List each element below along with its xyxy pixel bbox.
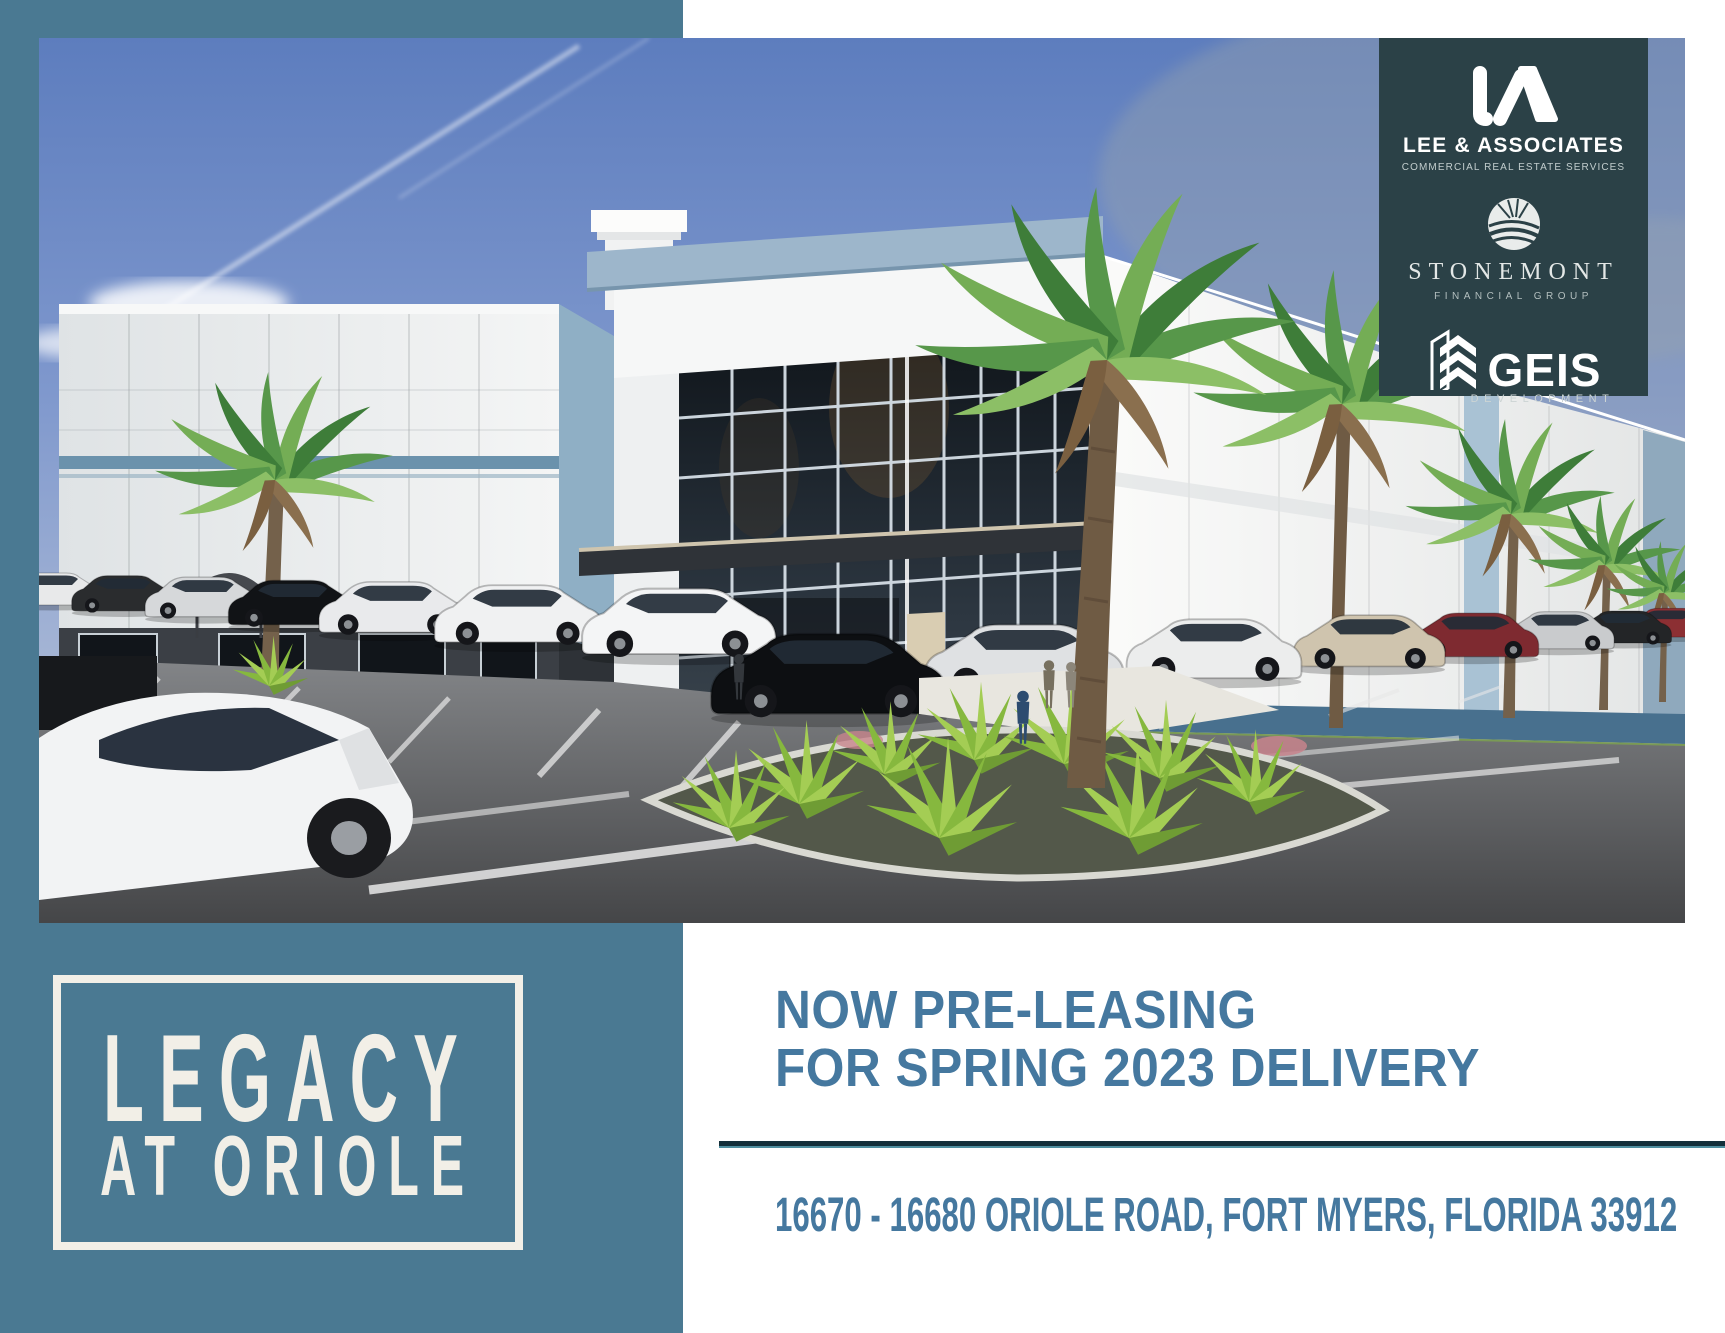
brokerage-logo-panel: LEE & ASSOCIATES COMMERCIAL REAL ESTATE … bbox=[1379, 38, 1648, 396]
geis-tagline: DEVELOPMENT bbox=[1471, 393, 1615, 405]
stonemont-mark-icon bbox=[1485, 195, 1543, 253]
geis-mark-icon bbox=[1426, 326, 1480, 390]
stonemont-tagline: FINANCIAL GROUP bbox=[1434, 291, 1593, 302]
geis-name: GEIS bbox=[1488, 351, 1602, 390]
divider-rule bbox=[719, 1141, 1725, 1148]
lee-associates-name: LEE & ASSOCIATES bbox=[1403, 134, 1624, 158]
stonemont-name: STONEMONT bbox=[1408, 259, 1619, 286]
lee-associates-logo: LEE & ASSOCIATES COMMERCIAL REAL ESTATE … bbox=[1402, 64, 1625, 173]
geis-logo: GEIS DEVELOPMENT bbox=[1413, 326, 1615, 405]
lee-associates-mark-icon bbox=[1458, 64, 1570, 128]
project-title-line2: AT ORIOLE bbox=[100, 1119, 476, 1214]
flyer-page: LEE & ASSOCIATES COMMERCIAL REAL ESTATE … bbox=[0, 0, 1725, 1333]
project-title: LEGACY AT ORIOLE bbox=[61, 983, 515, 1242]
lee-associates-tagline: COMMERCIAL REAL ESTATE SERVICES bbox=[1402, 162, 1625, 173]
pre-leasing-headline: NOW PRE-LEASING FOR SPRING 2023 DELIVERY bbox=[775, 981, 1480, 1097]
headline-line2: FOR SPRING 2023 DELIVERY bbox=[775, 1039, 1480, 1097]
headline-line1: NOW PRE-LEASING bbox=[775, 981, 1480, 1039]
property-address: 16670 - 16680 ORIOLE ROAD, FORT MYERS, F… bbox=[775, 1190, 1677, 1242]
stonemont-logo: STONEMONT FINANCIAL GROUP bbox=[1408, 195, 1619, 302]
project-title-box: LEGACY AT ORIOLE bbox=[53, 975, 523, 1250]
